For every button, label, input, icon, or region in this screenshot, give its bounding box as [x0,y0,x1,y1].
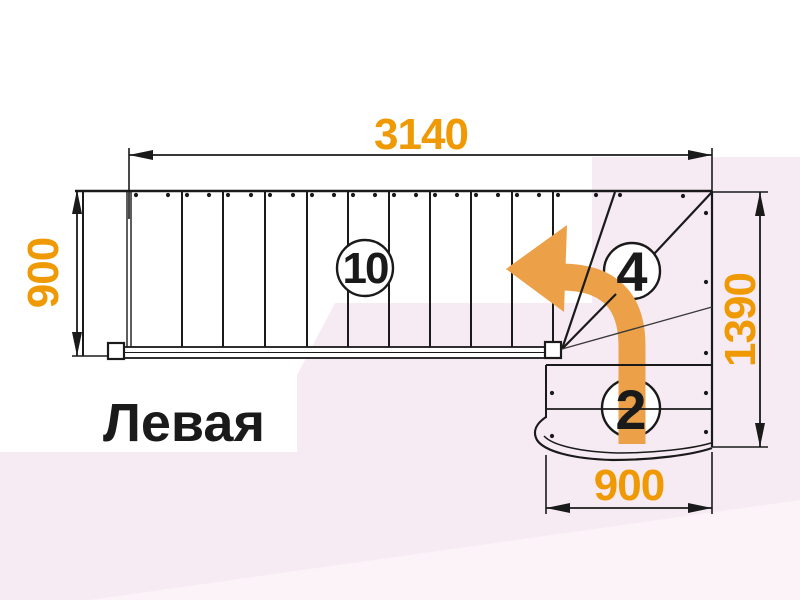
background [0,0,800,600]
dim-right-value: 1390 [716,273,765,367]
dim-bottom-value: 900 [594,461,664,510]
winder-steps-count: 4 [616,240,647,303]
left-newel-post [108,343,124,359]
diagram-title: Левая [103,393,265,453]
stair-plan-page: 3140 900 1390 900 10 4 2 Левая [0,0,800,600]
bottom-steps-count: 2 [615,378,646,441]
dim-top-value: 3140 [374,110,468,159]
straight-steps-count: 10 [343,244,388,293]
center-newel-post [545,342,561,358]
dim-left-value: 900 [19,238,68,308]
stair-plan-diagram: 3140 900 1390 900 10 4 2 Левая [0,0,800,600]
